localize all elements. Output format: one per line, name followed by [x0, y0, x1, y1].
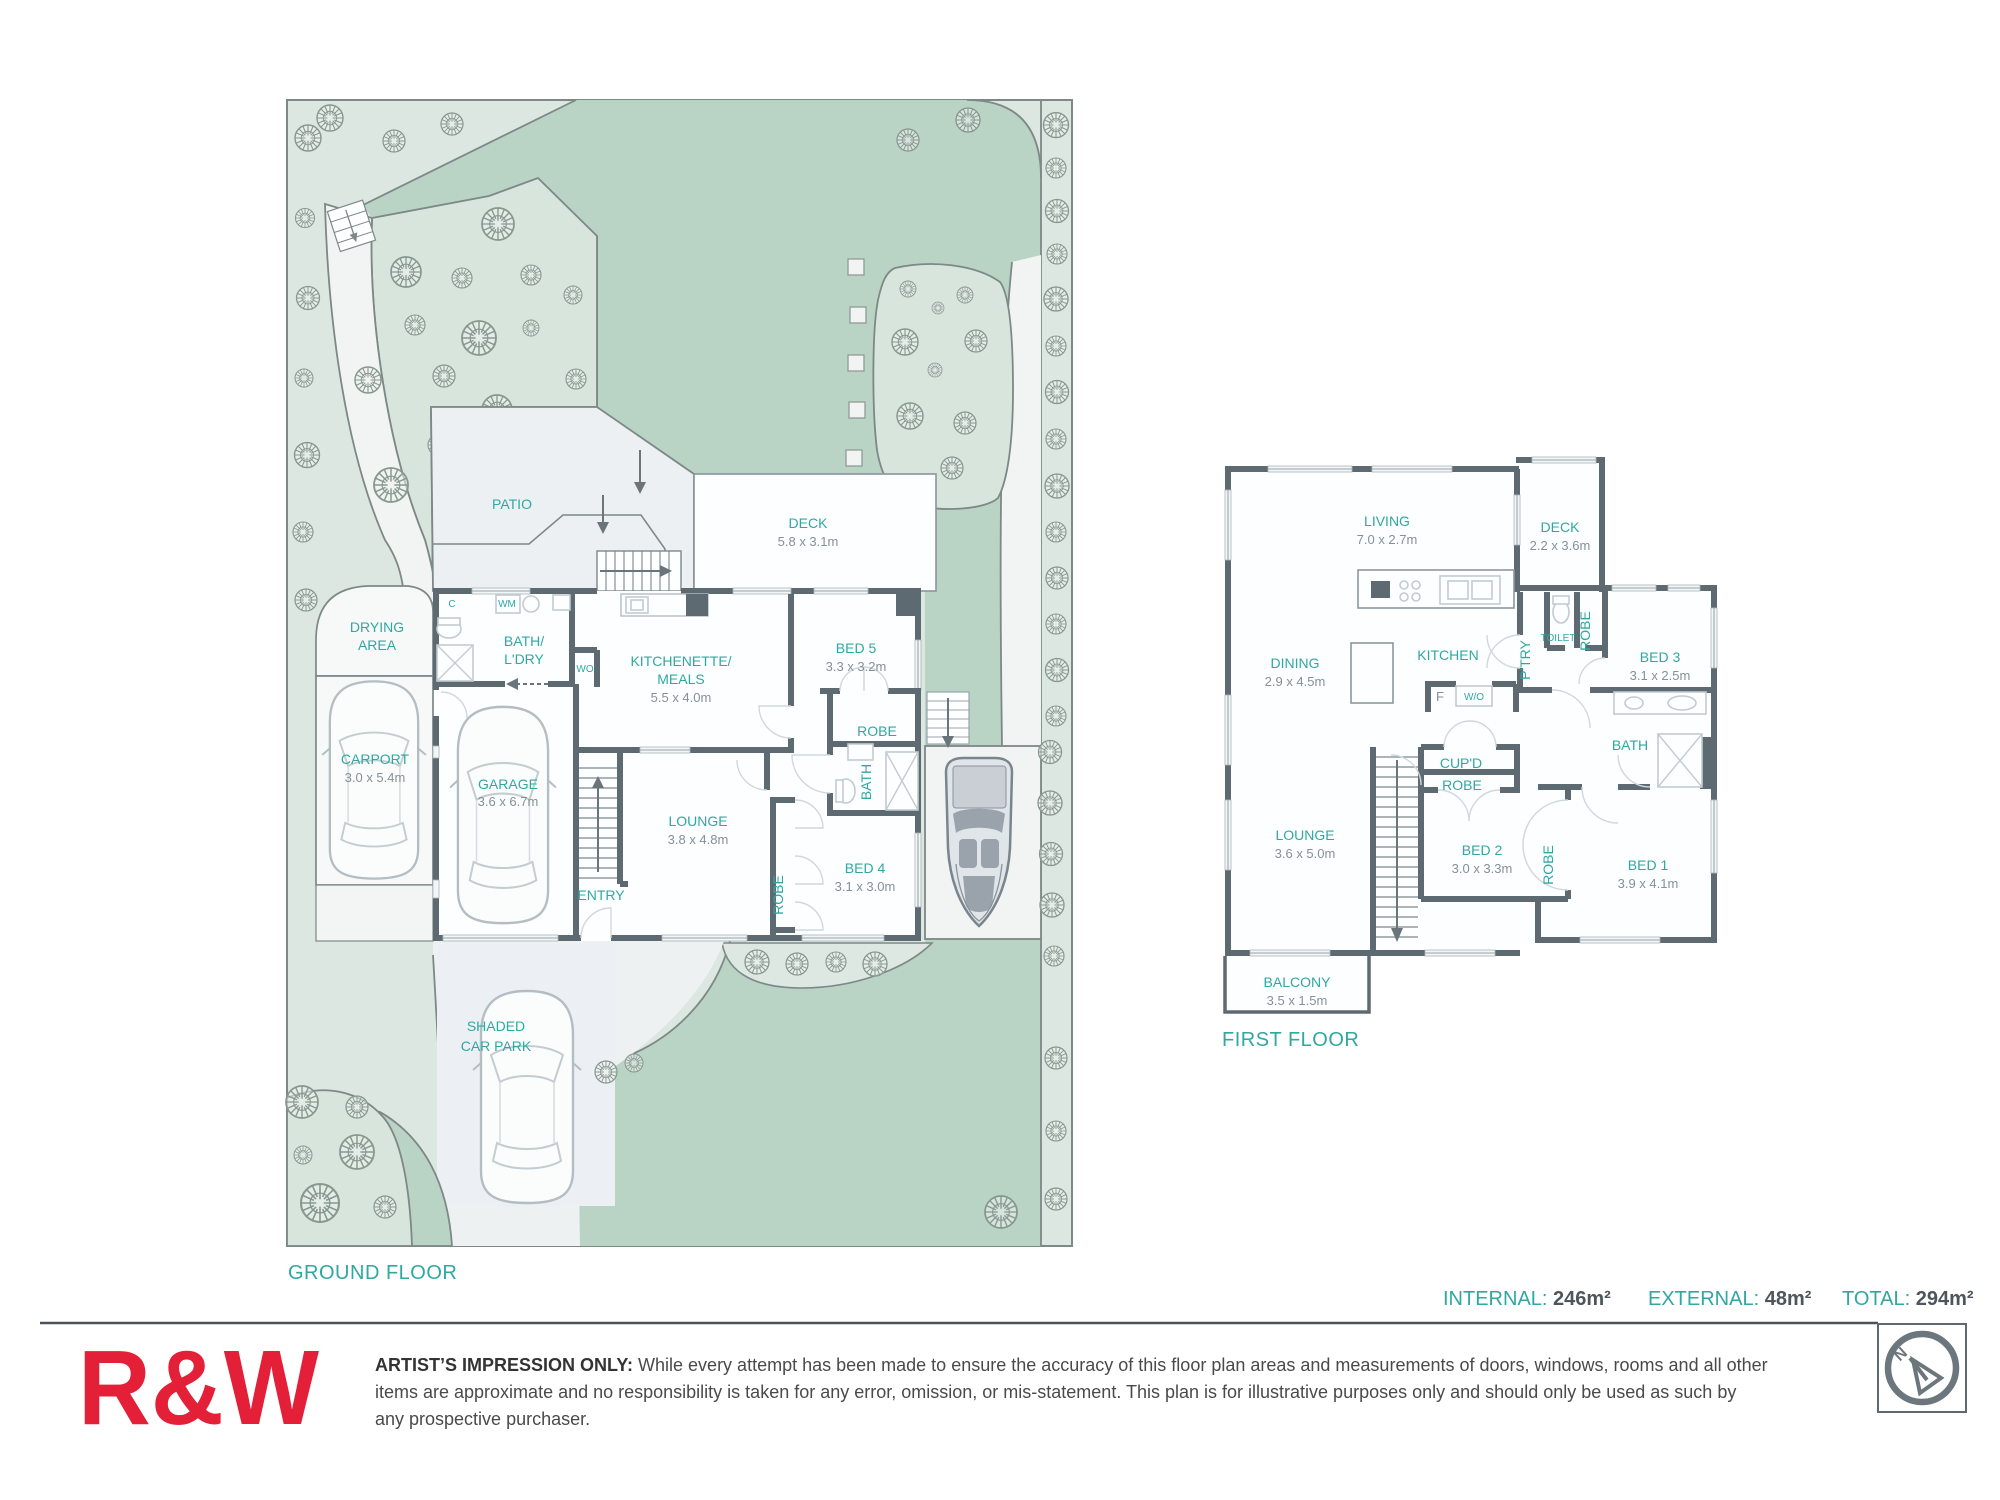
svg-text:W/O: W/O: [1464, 692, 1484, 703]
svg-text:5.8 x 3.1m: 5.8 x 3.1m: [778, 534, 839, 549]
svg-text:items are approximate and no r: items are approximate and no responsibil…: [375, 1382, 1736, 1402]
svg-text:any prospective purchaser.: any prospective purchaser.: [375, 1409, 590, 1429]
svg-text:ROBE: ROBE: [857, 723, 897, 739]
svg-text:AREA: AREA: [358, 637, 397, 653]
svg-text:BATH: BATH: [858, 764, 874, 800]
svg-text:F: F: [1436, 689, 1444, 704]
svg-text:ROBE: ROBE: [1442, 777, 1482, 793]
svg-text:3.9 x 4.1m: 3.9 x 4.1m: [1618, 876, 1679, 891]
svg-text:L'DRY: L'DRY: [504, 651, 544, 667]
svg-text:KITCHEN: KITCHEN: [1417, 647, 1478, 663]
svg-text:C: C: [448, 599, 455, 610]
svg-text:2.9 x 4.5m: 2.9 x 4.5m: [1265, 674, 1326, 689]
svg-text:MEALS: MEALS: [657, 671, 704, 687]
svg-text:ROBE: ROBE: [1577, 611, 1593, 651]
svg-text:CARPORT: CARPORT: [341, 751, 410, 767]
svg-text:DECK: DECK: [789, 515, 829, 531]
svg-text:3.8 x 4.8m: 3.8 x 4.8m: [668, 832, 729, 847]
svg-text:3.1 x 2.5m: 3.1 x 2.5m: [1630, 668, 1691, 683]
svg-text:EXTERNAL: 48m²: EXTERNAL: 48m²: [1648, 1288, 1812, 1310]
svg-text:BED 1: BED 1: [1628, 857, 1669, 873]
svg-text:CUP'D: CUP'D: [1440, 755, 1482, 771]
svg-text:3.3 x 3.2m: 3.3 x 3.2m: [826, 659, 887, 674]
svg-text:FIRST FLOOR: FIRST FLOOR: [1222, 1029, 1359, 1051]
svg-text:WM: WM: [498, 599, 516, 610]
svg-text:LOUNGE: LOUNGE: [1275, 827, 1334, 843]
svg-text:ARTIST’S IMPRESSION ONLY: Whil: ARTIST’S IMPRESSION ONLY: While every at…: [375, 1355, 1768, 1375]
svg-text:3.6 x 5.0m: 3.6 x 5.0m: [1275, 846, 1336, 861]
svg-text:BATH/: BATH/: [504, 633, 544, 649]
svg-text:R&W: R&W: [78, 1329, 319, 1447]
svg-text:BED 3: BED 3: [1640, 649, 1681, 665]
svg-text:WO: WO: [576, 664, 593, 675]
svg-text:BED 4: BED 4: [845, 860, 886, 876]
svg-text:TOILET: TOILET: [1541, 633, 1576, 644]
svg-text:LOUNGE: LOUNGE: [668, 813, 727, 829]
svg-text:SHADED: SHADED: [467, 1018, 525, 1034]
svg-text:GARAGE: GARAGE: [478, 776, 538, 792]
svg-text:BED 2: BED 2: [1462, 842, 1503, 858]
svg-text:PATIO: PATIO: [492, 496, 532, 512]
svg-text:TOTAL: 294m²: TOTAL: 294m²: [1842, 1288, 1974, 1310]
svg-text:3.6 x 6.7m: 3.6 x 6.7m: [478, 794, 539, 809]
svg-text:DRYING: DRYING: [350, 619, 404, 635]
svg-text:BALCONY: BALCONY: [1264, 974, 1332, 990]
svg-text:P'TRY: P'TRY: [1517, 639, 1533, 679]
svg-text:KITCHENETTE/: KITCHENETTE/: [630, 653, 731, 669]
svg-text:GROUND FLOOR: GROUND FLOOR: [288, 1262, 457, 1284]
svg-text:ROBE: ROBE: [770, 875, 786, 915]
svg-text:INTERNAL: 246m²: INTERNAL: 246m²: [1443, 1288, 1611, 1310]
svg-text:ENTRY: ENTRY: [577, 887, 625, 903]
svg-text:5.5 x 4.0m: 5.5 x 4.0m: [651, 690, 712, 705]
svg-text:LIVING: LIVING: [1364, 513, 1410, 529]
svg-text:DINING: DINING: [1271, 655, 1320, 671]
svg-text:BATH: BATH: [1612, 737, 1648, 753]
svg-text:2.2 x 3.6m: 2.2 x 3.6m: [1530, 538, 1591, 553]
svg-text:DECK: DECK: [1541, 519, 1581, 535]
svg-text:ROBE: ROBE: [1540, 845, 1556, 885]
svg-text:3.0 x 3.3m: 3.0 x 3.3m: [1452, 861, 1513, 876]
svg-text:3.1 x 3.0m: 3.1 x 3.0m: [835, 879, 896, 894]
svg-text:BED 5: BED 5: [836, 640, 877, 656]
svg-text:CAR PARK: CAR PARK: [461, 1038, 532, 1054]
svg-text:3.5 x 1.5m: 3.5 x 1.5m: [1267, 993, 1328, 1008]
svg-text:3.0 x 5.4m: 3.0 x 5.4m: [345, 770, 406, 785]
svg-text:7.0 x 2.7m: 7.0 x 2.7m: [1357, 532, 1418, 547]
